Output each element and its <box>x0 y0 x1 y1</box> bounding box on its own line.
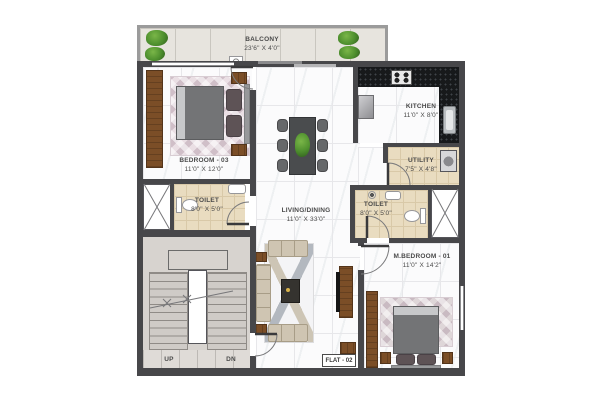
living-dims: 11'0" X 33'0" <box>270 215 342 224</box>
toilet-a-dims: 8'0" X 5'0" <box>172 205 242 214</box>
room-label-master: M.BEDROOM - 01 11'0" X 14'2" <box>380 252 464 270</box>
bedroom3-dims: 11'0" X 12'0" <box>164 165 244 174</box>
master-dims: 11'0" X 14'2" <box>380 261 464 270</box>
toilet-a-name: TOILET <box>172 196 242 205</box>
kitchen-name: KITCHEN <box>385 102 457 111</box>
floor-plan: BALCONY 23'6" X 4'0" BEDROOM - 03 11'0" … <box>0 0 608 400</box>
utility-dims: 7'5" X 4'8" <box>388 165 454 174</box>
door-arc-toilet-b <box>367 216 389 238</box>
room-label-balcony: BALCONY 23'6" X 4'0" <box>232 35 292 53</box>
door-arc-bedroom3 <box>231 67 253 89</box>
room-label-toilet-b: TOILET 8'0" X 5'0" <box>346 200 406 218</box>
bedroom3-name: BEDROOM - 03 <box>164 156 244 165</box>
flat-number-badge: FLAT - 02 <box>322 354 356 367</box>
stair-cross-mark <box>183 295 191 303</box>
room-label-kitchen: KITCHEN 11'0" X 8'0" <box>385 102 457 120</box>
stair-direction-line <box>150 291 233 308</box>
toilet-b-name: TOILET <box>346 200 406 209</box>
door-arc-entry <box>255 334 277 356</box>
balcony-name: BALCONY <box>232 35 292 44</box>
room-label-toilet-a: TOILET 8'0" X 5'0" <box>172 196 242 214</box>
stair-cross-mark <box>163 299 171 307</box>
toilet-b-dims: 8'0" X 5'0" <box>346 209 406 218</box>
balcony-dims: 23'6" X 4'0" <box>232 44 292 53</box>
living-name: LIVING/DINING <box>270 206 342 215</box>
room-label-utility: UTILITY 7'5" X 4'8" <box>388 156 454 174</box>
shaft-cross-icon <box>144 184 170 230</box>
shaft-cross-icon <box>432 189 458 237</box>
kitchen-dims: 11'0" X 8'0" <box>385 111 457 120</box>
room-label-bedroom3: BEDROOM - 03 11'0" X 12'0" <box>164 156 244 174</box>
stair-down-label: DN <box>220 355 242 364</box>
utility-name: UTILITY <box>388 156 454 165</box>
room-label-living: LIVING/DINING 11'0" X 33'0" <box>270 206 342 224</box>
plan-annotations <box>0 0 608 400</box>
stair-up-label: UP <box>158 355 180 364</box>
master-name: M.BEDROOM - 01 <box>380 252 464 261</box>
